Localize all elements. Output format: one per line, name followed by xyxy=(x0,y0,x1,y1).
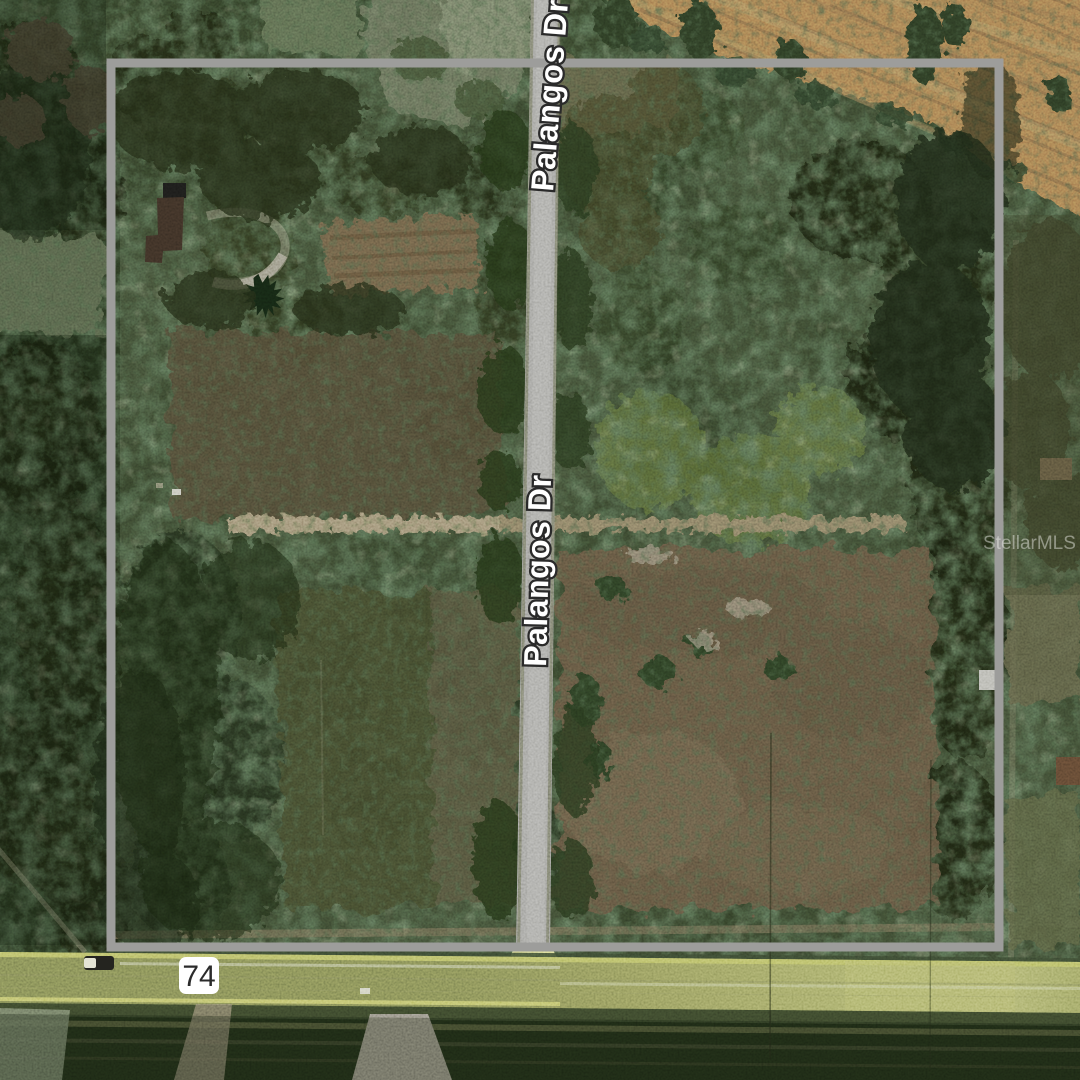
svg-text:Palangos Dr: Palangos Dr xyxy=(517,474,558,667)
svg-text:74: 74 xyxy=(182,960,215,993)
svg-text:StellarMLS: StellarMLS xyxy=(983,533,1076,554)
